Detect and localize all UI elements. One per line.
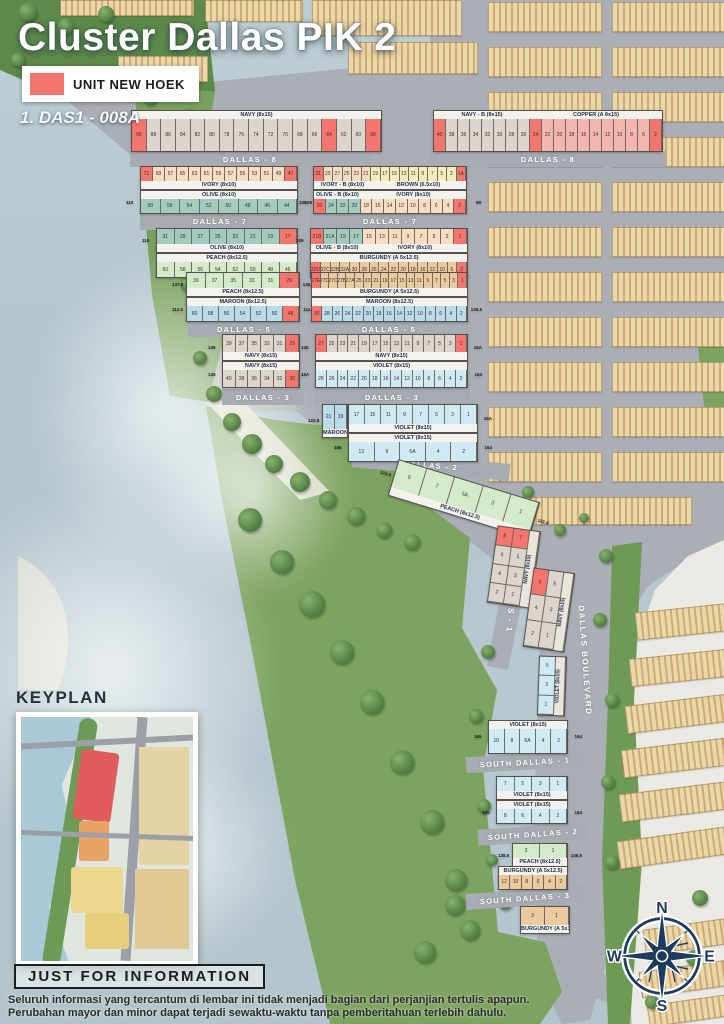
tree xyxy=(290,472,310,492)
row-label: OLIVE (8x10) xyxy=(141,191,297,199)
unit-cell: 50 xyxy=(267,306,283,321)
unit-cell: 39 xyxy=(223,335,236,352)
row-label: IVORY - B (8x10) xyxy=(314,181,371,189)
compass-e: E xyxy=(704,949,715,966)
unit-cell: 26 xyxy=(518,119,530,151)
unit-cell: 12 xyxy=(396,199,408,213)
tree xyxy=(445,895,465,915)
row-label: IVORY (8x10) xyxy=(363,244,467,252)
unit-cell: 80 xyxy=(205,119,220,151)
unit-cell: 28 xyxy=(316,370,327,387)
unit-cell: 7 xyxy=(413,405,429,424)
unit-cell: 2 xyxy=(456,370,467,387)
unit-row-burgundy: 31BURGUNDY (A 5x12.5) xyxy=(520,906,570,934)
row-label: VIOLET (8x15) xyxy=(349,434,477,442)
house-strip xyxy=(612,2,724,32)
unit-cell: 32 xyxy=(274,370,287,387)
unit-cell: 12 xyxy=(402,370,413,387)
unit-cell: 2 xyxy=(451,442,477,461)
tree xyxy=(605,693,619,707)
unit-cell: 2 xyxy=(550,809,568,823)
unit-cell: 6 xyxy=(435,370,446,387)
unit-cell: 16 xyxy=(578,119,590,151)
unit-cell: 2 xyxy=(457,306,467,321)
tree xyxy=(593,613,607,627)
block-dallas5-left: 393735333129PEACH (8x12.5)137.5136.5 MAR… xyxy=(186,272,300,322)
house-strip xyxy=(612,47,724,77)
unit-cell: 62 xyxy=(337,119,352,151)
unit-row-navy: NAVY (8x15)403836343230135 xyxy=(222,361,300,388)
row-label: BURGUNDY (A 5x12.5) xyxy=(312,288,467,296)
keyplan-zone-yellow2 xyxy=(85,913,129,949)
unit-cell: 25 xyxy=(327,335,338,352)
edge-measure-label: 165 xyxy=(482,810,490,815)
unit-cell: 38 xyxy=(446,119,458,151)
tree xyxy=(347,507,365,525)
tree xyxy=(265,455,283,473)
unit-cell: 3 xyxy=(539,676,556,696)
unit-cell: 5 xyxy=(438,167,448,181)
row-label: NAVY - B (8x15) xyxy=(434,111,530,119)
unit-cell: 1 xyxy=(550,777,568,791)
edge-measure-label: 110 xyxy=(126,200,133,205)
row-label: BURGUNDY (A 5x12.5) xyxy=(521,925,569,933)
edge-measure-label: 136.5 xyxy=(571,853,582,858)
unit-cell: 66 xyxy=(308,119,323,151)
unit-cell: 11 xyxy=(415,273,424,288)
keyplan-title: KEYPLAN xyxy=(16,688,198,708)
house-strip xyxy=(488,182,602,212)
edge-measure-label: 16A xyxy=(301,372,309,377)
row-label: BROWN (6.5x10) xyxy=(371,181,466,189)
street-dallas-3-right: DALLAS - 3 xyxy=(314,389,470,405)
unit-row-ivoryb-brown: 312927252321191715131197531AIVORY - B (8… xyxy=(313,166,467,190)
unit-row-ivory: 71696765636159575553514947IVORY (8x10) xyxy=(140,166,298,190)
unit-cell: 54 xyxy=(180,199,200,213)
unit-cell: 1 xyxy=(454,229,467,244)
tree xyxy=(579,513,589,523)
unit-cell: 29 xyxy=(324,167,334,181)
unit-cell: 4 xyxy=(536,729,552,753)
unit-cell: 9 xyxy=(419,167,429,181)
house-strip xyxy=(488,317,602,347)
unit-cell: 27 xyxy=(333,167,343,181)
block-dallas8-right: NAVY - B (8x15)COPPER (A 8x15)4038363432… xyxy=(433,110,663,152)
tree xyxy=(319,491,337,509)
row-label: MAROON (8x12.5) xyxy=(187,298,299,306)
unit-cell: 7 xyxy=(424,335,435,352)
house-strip xyxy=(488,2,602,32)
unit-cell: 19 xyxy=(371,167,381,181)
edge-measure-label: 16A xyxy=(474,345,482,350)
unit-cell: 21A xyxy=(324,229,337,244)
row-label: VIOLET (8x15) xyxy=(554,657,566,715)
unit-cell: 5 xyxy=(515,777,533,791)
edge-measure-label: 164 xyxy=(474,372,482,377)
unit-cell: 18 xyxy=(374,306,384,321)
unit-cell: 6A xyxy=(400,442,426,461)
block-dallas7-left: 71696765636159575553514947IVORY (8x10) O… xyxy=(140,166,298,214)
unit-cell: 3 xyxy=(441,229,454,244)
unit-cell: 16 xyxy=(381,370,392,387)
tree xyxy=(404,534,420,550)
unit-cell: 60 xyxy=(352,119,367,151)
block-dallas3-right: 27252321191715131197531NAVY (8x15)13616A… xyxy=(315,334,468,388)
tree xyxy=(522,486,534,498)
unit-cell: 13 xyxy=(391,335,402,352)
unit-cell: 1 xyxy=(456,335,467,352)
unit-cell: 8 xyxy=(522,875,533,889)
block-dallas3-left: 393735333129NAVY (8x15)135 NAVY (8x15)40… xyxy=(222,334,300,388)
house-strip xyxy=(612,272,724,302)
house-strip xyxy=(612,182,724,212)
unit-row-oliveb-ivory: OLIVE - B (8x10)IVORY (8x10)262422201816… xyxy=(313,190,467,214)
unit-cell: 36 xyxy=(248,370,261,387)
house-strip xyxy=(612,317,724,347)
tree xyxy=(206,386,222,402)
unit-cell: 13 xyxy=(407,273,416,288)
block-dallas7-right: 312927252321191715131197531AIVORY - B (8… xyxy=(313,166,467,214)
compass-rose: N E S W xyxy=(606,900,718,1012)
unit-cell: 72 xyxy=(264,119,279,151)
unit-row-violet-vertical: 531VIOLET (8x15) xyxy=(537,656,567,717)
unit-cell: 5 xyxy=(429,405,445,424)
unit-cell: 18 xyxy=(566,119,578,151)
unit-cell: 20 xyxy=(349,199,361,213)
unit-cell: 1 xyxy=(540,844,567,858)
unit-cell: 4 xyxy=(544,875,555,889)
unit-cell: 5 xyxy=(435,335,446,352)
unit-cell: 25 xyxy=(343,167,353,181)
row-label: VIOLET (8x15) xyxy=(316,362,467,370)
house-strip xyxy=(488,47,602,77)
unit-cell: 12 xyxy=(602,119,614,151)
unit-cell: 40 xyxy=(223,370,236,387)
row-label: OLIVE (8x10) xyxy=(157,244,297,252)
unit-cell: 13 xyxy=(376,229,389,244)
unit-cell: 88 xyxy=(147,119,162,151)
unit-cell: 12 xyxy=(405,306,415,321)
keyplan-zone-yellow xyxy=(71,867,123,913)
unit-row-oliveb-ivory: 21B21A191715131197531OLIVE - B (8x10)IVO… xyxy=(310,228,468,253)
unit-cell: 37 xyxy=(236,335,249,352)
unit-cell: 46 xyxy=(258,199,278,213)
unit-cell: 11 xyxy=(409,167,419,181)
tree xyxy=(270,550,294,574)
unit-cell: 84 xyxy=(176,119,191,151)
unit-cell: 31 xyxy=(314,167,324,181)
unit-row-violet: VIOLET (8x15)28262422201816141210864216A… xyxy=(315,361,468,388)
keyplan-map xyxy=(16,712,198,966)
tree xyxy=(242,434,262,454)
unit-cell: 2 xyxy=(556,875,567,889)
unit-cell: 17 xyxy=(381,167,391,181)
unit-cell: 26 xyxy=(333,306,343,321)
unit-cell: 74 xyxy=(249,119,264,151)
unit-cell: 63 xyxy=(189,167,201,181)
unit-cell: 3 xyxy=(532,777,550,791)
unit-cell: 14 xyxy=(391,370,402,387)
unit-cell: 19 xyxy=(337,229,350,244)
edge-measure-label: 164 xyxy=(574,734,582,739)
unit-cell: 17 xyxy=(350,229,363,244)
unit-cell: 15 xyxy=(365,405,381,424)
edge-measure-label: 165 xyxy=(474,734,482,739)
unit-cell: 4 xyxy=(446,306,456,321)
unit-cell: 70 xyxy=(278,119,293,151)
unit-cell: 55 xyxy=(237,167,249,181)
tree xyxy=(390,750,414,774)
unit-cell: 29 xyxy=(280,273,299,288)
unit-cell: 2 xyxy=(454,199,466,213)
footer-heading: JUST FOR INFORMATION xyxy=(14,964,265,989)
row-label: IVORY (8x10) xyxy=(141,181,297,189)
unit-row-maroon: MAROON (8x12.5)60585654525048112.5111.5 xyxy=(186,297,300,322)
unit-cell: 20 xyxy=(364,306,374,321)
unit-cell: 1 xyxy=(461,405,477,424)
unit-cell: 31 xyxy=(157,229,175,244)
row-label: VIOLET (8x15) xyxy=(497,801,567,809)
unit-cell: 3 xyxy=(513,844,540,858)
legend-swatch-hoek xyxy=(30,73,64,95)
house-strip xyxy=(612,362,724,392)
unit-cell: 10 xyxy=(415,306,425,321)
unit-row-violet: 7531VIOLET (8x15) xyxy=(496,776,568,800)
unit-cell: 9 xyxy=(424,273,433,288)
unit-cell: 9 xyxy=(375,442,401,461)
unit-cell: 26 xyxy=(314,199,326,213)
unit-cell: 56 xyxy=(161,199,181,213)
unit-cell: 21 xyxy=(362,167,372,181)
unit-cell: 8 xyxy=(426,306,436,321)
unit-cell: 68 xyxy=(293,119,308,151)
unit-cell: 27B xyxy=(338,273,347,288)
unit-cell: 6 xyxy=(533,875,544,889)
unit-cell: 54 xyxy=(235,306,251,321)
unit-cell: 5 xyxy=(441,273,450,288)
unit-cell: 9 xyxy=(397,405,413,424)
unit-cell: 1 xyxy=(538,695,555,715)
tree xyxy=(460,920,480,940)
unit-cell: 12 xyxy=(499,875,510,889)
unit-cell: 7 xyxy=(428,167,438,181)
block-dallas6-left: 3129272523211917OLIVE (8x10)110 PEACH (8… xyxy=(156,228,298,278)
unit-cell: 31 xyxy=(274,335,287,352)
block-dallas6-right: 21B21A191715131197531OLIVE - B (8x10)IVO… xyxy=(310,228,468,278)
unit-cell: 7 xyxy=(415,229,428,244)
edge-measure-label: 16A xyxy=(484,416,492,421)
unit-cell: 22 xyxy=(542,119,554,151)
unit-cell: 24 xyxy=(338,370,349,387)
unit-cell: 6 xyxy=(436,306,446,321)
legend: UNIT NEW HOEK xyxy=(22,66,199,102)
unit-cell: 27C xyxy=(329,273,338,288)
unit-cell: 60 xyxy=(187,306,203,321)
unit-cell: 22 xyxy=(353,306,363,321)
unit-cell: 10 xyxy=(408,199,420,213)
unit-cell: 31 xyxy=(262,273,281,288)
unit-cell: 13 xyxy=(349,442,375,461)
house-strip xyxy=(612,227,724,257)
unit-cell: 34 xyxy=(470,119,482,151)
edge-measure-label: 136.5 xyxy=(471,307,482,312)
unit-cell: 24 xyxy=(343,306,353,321)
unit-cell: 6A xyxy=(520,729,536,753)
unit-cell: 18 xyxy=(370,370,381,387)
block-dallas5-right: 27E27D27C27B27A252321191715131197531BURG… xyxy=(311,272,468,322)
unit-cell: 19 xyxy=(359,335,370,352)
unit-cell: 1A xyxy=(457,167,467,181)
edge-measure-label: 135 xyxy=(208,372,216,377)
unit-cell: 8 xyxy=(424,370,435,387)
unit-cell: 58 xyxy=(203,306,219,321)
unit-cell: 6 xyxy=(638,119,650,151)
unit-cell: 14 xyxy=(395,306,405,321)
unit-cell: 65 xyxy=(177,167,189,181)
unit-cell: 7 xyxy=(433,273,442,288)
unit-cell: 29 xyxy=(286,335,299,352)
edge-measure-label: 109 xyxy=(299,200,307,205)
unit-cell: 3 xyxy=(447,167,457,181)
unit-cell: 3 xyxy=(445,335,456,352)
unit-cell: 33 xyxy=(243,273,262,288)
unit-cell: 8 xyxy=(419,199,431,213)
edge-measure-label: 137.5 xyxy=(172,282,183,287)
unit-cell: 19 xyxy=(335,405,347,429)
row-label: NAVY (8x15) xyxy=(316,352,467,360)
unit-cell: 59 xyxy=(213,167,225,181)
unit-cell: 30 xyxy=(494,119,506,151)
unit-cell: 4 xyxy=(445,370,456,387)
unit-row-navy: 27252321191715131197531NAVY (8x15)13616A xyxy=(315,334,468,361)
unit-cell: 21 xyxy=(372,273,381,288)
row-label: PEACH (8x12.5) xyxy=(187,288,299,296)
unit-cell: 2 xyxy=(551,729,567,753)
unit-cell: 25 xyxy=(355,273,364,288)
edge-measure-label: 122.5 xyxy=(308,418,319,423)
row-label: COPPER (A 8x15) xyxy=(530,111,662,119)
unit-cell: 3 xyxy=(445,405,461,424)
tree xyxy=(601,775,615,789)
house-strip xyxy=(488,227,602,257)
unit-cell: 8 xyxy=(505,729,521,753)
unit-cell: 27E xyxy=(312,273,321,288)
unit-cell: 53 xyxy=(249,167,261,181)
unit-cell: 82 xyxy=(191,119,206,151)
keyplan-zone-tan2 xyxy=(135,869,189,949)
unit-row-violet: VIOLET (8x15)1396A42165164 xyxy=(348,433,478,462)
edge-measure-label: 136 xyxy=(301,345,309,350)
unit-cell: 30 xyxy=(312,306,322,321)
unit-cell: 27 xyxy=(316,335,327,352)
tree xyxy=(420,810,444,834)
tree xyxy=(238,508,262,532)
unit-cell: 33 xyxy=(261,335,274,352)
block-burgundy-south3: 31BURGUNDY (A 5x12.5) xyxy=(520,906,570,934)
unit-cell: 5 xyxy=(428,229,441,244)
row-label: VIOLET (8x15) xyxy=(489,721,567,729)
unit-annotation: 1. DAS1 - 008A xyxy=(20,108,140,128)
compass-n: N xyxy=(656,900,667,917)
tree xyxy=(330,640,354,664)
unit-cell: 21B xyxy=(311,229,324,244)
unit-row-navy-8x15: NAVY (8x15)90888684828078767472706866646… xyxy=(131,110,382,152)
block-burgundy-south2: BURGUNDY (A 5x12.5)12108642 xyxy=(498,866,568,890)
unit-cell: 17 xyxy=(280,229,298,244)
compass-s: S xyxy=(657,998,668,1012)
unit-cell: 19 xyxy=(262,229,280,244)
tree xyxy=(299,591,325,617)
unit-cell: 1 xyxy=(545,907,569,925)
unit-cell: 56 xyxy=(219,306,235,321)
keyplan-zone-tan xyxy=(139,747,189,865)
tree xyxy=(486,854,498,866)
tree xyxy=(554,524,566,536)
house-strip xyxy=(60,0,194,16)
edge-measure-label: 135 xyxy=(208,345,216,350)
unit-cell: 14 xyxy=(590,119,602,151)
unit-cell: 10 xyxy=(489,729,505,753)
unit-cell: 15 xyxy=(398,273,407,288)
edge-measure-label: 112.5 xyxy=(172,307,183,312)
unit-row-olive: 3129272523211917OLIVE (8x10)110 xyxy=(156,228,298,253)
unit-cell: 17 xyxy=(389,273,398,288)
row-label: OLIVE - B (8x10) xyxy=(311,244,363,252)
unit-cell: 26 xyxy=(327,370,338,387)
edge-measure-label: 165 xyxy=(334,445,342,450)
edge-measure-label: 89 xyxy=(476,200,481,205)
unit-cell: 35 xyxy=(224,273,243,288)
edge-measure-label: 164 xyxy=(484,445,492,450)
edge-measure-label: 164 xyxy=(574,810,582,815)
unit-cell: 20 xyxy=(359,370,370,387)
unit-cell: 21 xyxy=(245,229,263,244)
tree xyxy=(193,351,207,365)
unit-cell: 24 xyxy=(530,119,542,151)
unit-cell: 4 xyxy=(426,442,452,461)
street-dallas-8-left: DALLAS - 8 xyxy=(130,151,370,167)
unit-cell: 2 xyxy=(650,119,662,151)
unit-row-violet: 17151197531VIOLET (8x15)16A xyxy=(348,404,478,433)
unit-cell: 3 xyxy=(521,907,545,925)
unit-cell: 48 xyxy=(239,199,259,213)
unit-cell: 37 xyxy=(206,273,225,288)
house-strip xyxy=(612,407,724,437)
unit-cell: 61 xyxy=(201,167,213,181)
house-strip xyxy=(488,272,602,302)
row-label: MAROON (8x12.5) xyxy=(323,429,347,437)
unit-cell: 23 xyxy=(227,229,245,244)
unit-cell: 86 xyxy=(161,119,176,151)
tree xyxy=(360,690,384,714)
unit-cell: 28 xyxy=(506,119,518,151)
block-violet-vertical: 531VIOLET (8x15) xyxy=(537,656,567,717)
unit-cell: 15 xyxy=(381,335,392,352)
unit-cell: 23 xyxy=(338,335,349,352)
unit-cell: 16 xyxy=(372,199,384,213)
tree xyxy=(605,855,619,869)
unit-cell: 20 xyxy=(554,119,566,151)
unit-cell: 22 xyxy=(337,199,349,213)
unit-cell: 7 xyxy=(497,777,515,791)
row-label: PEACH (8x12.5) xyxy=(513,858,567,866)
unit-cell: 58 xyxy=(141,199,161,213)
tree xyxy=(414,941,436,963)
unit-row-violet: VIOLET (8x15)1086A42165164 xyxy=(488,720,568,754)
unit-cell: 10 xyxy=(413,370,424,387)
tree xyxy=(469,709,483,723)
block-violet-south1: 7531VIOLET (8x15) VIOLET (8x15)864216516… xyxy=(496,776,568,824)
